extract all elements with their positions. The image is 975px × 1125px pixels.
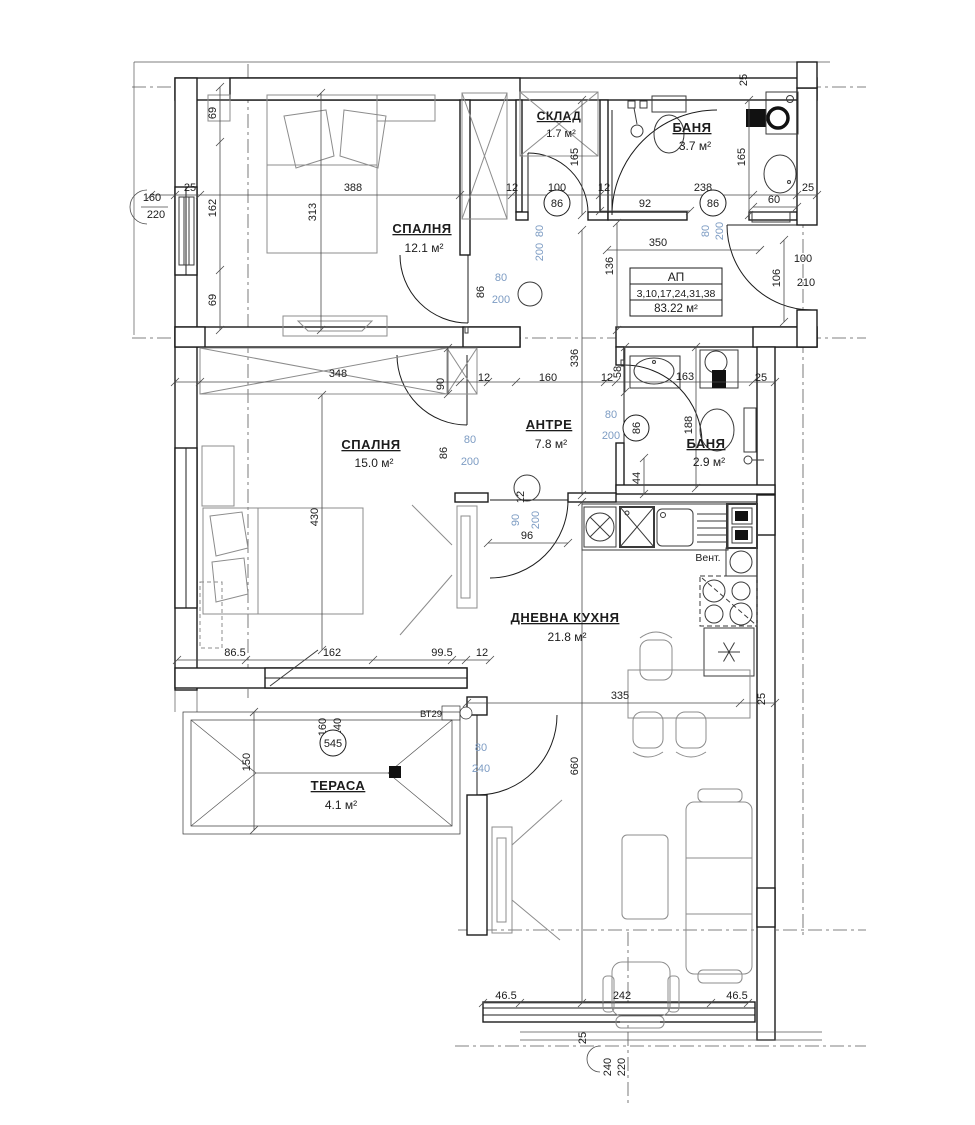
bedroom2-door-arc (397, 355, 467, 425)
storage-shelf (520, 92, 598, 156)
entrance-door-arc (727, 225, 812, 310)
washing-machine-1 (746, 108, 788, 128)
terrace-door-arc (477, 715, 557, 795)
bed-double-2 (200, 446, 363, 648)
apartment-id: АП (668, 270, 685, 284)
dimension-label: 242 (613, 990, 631, 1002)
dimension-label: 25 (755, 372, 767, 384)
room-area-living-kitchen: 21.8 м² (548, 630, 587, 644)
dimension-label: 150 (241, 753, 253, 771)
dimension-label: 25 (756, 693, 768, 705)
dimension-label: 80 (700, 225, 712, 237)
dimension-label: 162 (323, 647, 341, 659)
dimension-label: 86 (438, 447, 450, 459)
dimension-label: 86 (707, 198, 719, 210)
room-label-hallway: АНТРЕ (526, 417, 573, 432)
dimension-label: 25 (738, 74, 750, 86)
room-area-bedroom1: 12.1 м² (405, 241, 444, 255)
dimension-label: 348 (329, 368, 347, 380)
vent-label: Вент. (695, 552, 720, 564)
dimension-label: 86 (551, 198, 563, 210)
dimension-label: 388 (344, 182, 362, 194)
dimension-label: 200 (534, 243, 546, 261)
dimension-label: 163 (676, 371, 694, 383)
dimension-label: 160 (539, 372, 557, 384)
dimension-label: 86.5 (224, 647, 245, 659)
dimension-label: 313 (307, 203, 319, 221)
dimension-label: 12 (515, 491, 527, 503)
room-label-bedroom1: СПАЛНЯ (392, 221, 451, 236)
dimension-label: 80 (605, 409, 617, 421)
dimension-label: 69 (207, 107, 219, 119)
bt29-label: ВТ29 (420, 709, 442, 720)
dimension-label: 12 (506, 182, 518, 194)
dimension-label: 200 (714, 222, 726, 240)
room-area-bathroom1: 3.7 м² (679, 139, 711, 153)
dimension-label: 100 (794, 253, 812, 265)
dimension-label: 188 (683, 416, 695, 434)
window-size-bracket (587, 1046, 600, 1072)
fridge (704, 628, 754, 676)
dimension-label: 12 (476, 647, 488, 659)
dimension-label: 335 (611, 690, 629, 702)
dimension-label: 430 (309, 508, 321, 526)
room-area-hallway: 7.8 м² (535, 437, 567, 451)
hob (700, 576, 757, 626)
room-area-terrace: 4.1 м² (325, 798, 357, 812)
dining-table (628, 632, 750, 757)
floor-plan-drawing: СПАЛНЯ 12.1 м² СКЛАД 1.7 м² БАНЯ 3.7 м² … (0, 0, 975, 1125)
dimension-label: 200 (602, 430, 620, 442)
dimension-label: 90 (510, 514, 522, 526)
dimension-label: 220 (616, 1058, 628, 1076)
dimension-label: 25 (802, 182, 814, 194)
tv-living (492, 800, 562, 940)
dimension-label: 92 (639, 198, 651, 210)
dimension-label: 58 (612, 366, 624, 378)
dimension-label: 69 (207, 294, 219, 306)
dimension-label: 220 (147, 209, 165, 221)
dimension-label: 80 (495, 272, 507, 284)
dimension-label: 350 (649, 237, 667, 249)
room-label-bathroom1: БАНЯ (673, 120, 712, 135)
dimension-label: 86 (631, 422, 643, 434)
dimension-label: 46.5 (495, 990, 516, 1002)
dimension-label: 200 (461, 456, 479, 468)
dimension-label: 25 (184, 182, 196, 194)
dimension-label: 660 (569, 757, 581, 775)
oven-column (726, 504, 757, 576)
tv-unit-bedroom2 (400, 505, 477, 635)
dimension-label: 136 (604, 257, 616, 275)
sink-2 (630, 356, 680, 388)
shower-icon (628, 101, 647, 137)
dimension-label: 165 (569, 148, 581, 166)
dimension-label: 80 (534, 225, 546, 237)
dimension-label: 165 (736, 148, 748, 166)
dimension-label: 25 (577, 1032, 589, 1044)
dimension-label: 80 (475, 742, 487, 754)
dimension-label: 200 (530, 511, 542, 529)
floor-plan-page: СПАЛНЯ 12.1 м² СКЛАД 1.7 м² БАНЯ 3.7 м² … (0, 0, 975, 1125)
room-area-storage: 1.7 м² (546, 128, 576, 140)
dimension-label: 60 (768, 194, 780, 206)
dimension-label: 160 (143, 192, 161, 204)
dimension-label: 200 (492, 294, 510, 306)
dimension-label: 44 (631, 472, 643, 484)
dimension-label: 336 (569, 349, 581, 367)
dimension-label: 46.5 (726, 990, 747, 1002)
kitchen-counter (582, 504, 728, 550)
apartment-units: 3,10,17,24,31,38 (637, 288, 716, 300)
dimension-label: 240 (472, 763, 490, 775)
dimension-label: 12 (598, 182, 610, 194)
drain-icon (389, 766, 401, 778)
dimension-label: 86 (475, 286, 487, 298)
dimension-label: 90 (435, 378, 447, 390)
apartment-total-area: 83.22 м² (654, 303, 698, 315)
apartment-card: АП 3,10,17,24,31,38 83.22 м² (630, 268, 722, 316)
room-area-bathroom2: 2.9 м² (693, 455, 725, 469)
room-area-bedroom2: 15.0 м² (355, 456, 394, 470)
sofa (686, 789, 752, 983)
room-label-terrace: ТЕРАСА (311, 778, 366, 793)
dimension-label: 80 (464, 434, 476, 446)
coffee-table (622, 835, 668, 919)
bedroom1-door-arc (400, 255, 468, 323)
room-label-living-kitchen: ДНЕВНА КУХНЯ (511, 610, 620, 625)
dimension-label: 210 (797, 277, 815, 289)
room-label-storage: СКЛАД (537, 109, 582, 123)
dimension-label: 96 (521, 530, 533, 542)
dimension-label: 162 (207, 199, 219, 217)
dimension-label: 545 (324, 738, 342, 750)
dimension-label: 106 (771, 269, 783, 287)
room-label-bathroom2: БАНЯ (687, 436, 726, 451)
bt29-marker-icon (460, 707, 472, 719)
dimension-label: 12 (478, 372, 490, 384)
dimension-label: 99.5 (431, 647, 452, 659)
dimension-label: 240 (602, 1058, 614, 1076)
room-label-bedroom2: СПАЛНЯ (341, 437, 400, 452)
ceiling-lamp-icon (518, 282, 542, 306)
